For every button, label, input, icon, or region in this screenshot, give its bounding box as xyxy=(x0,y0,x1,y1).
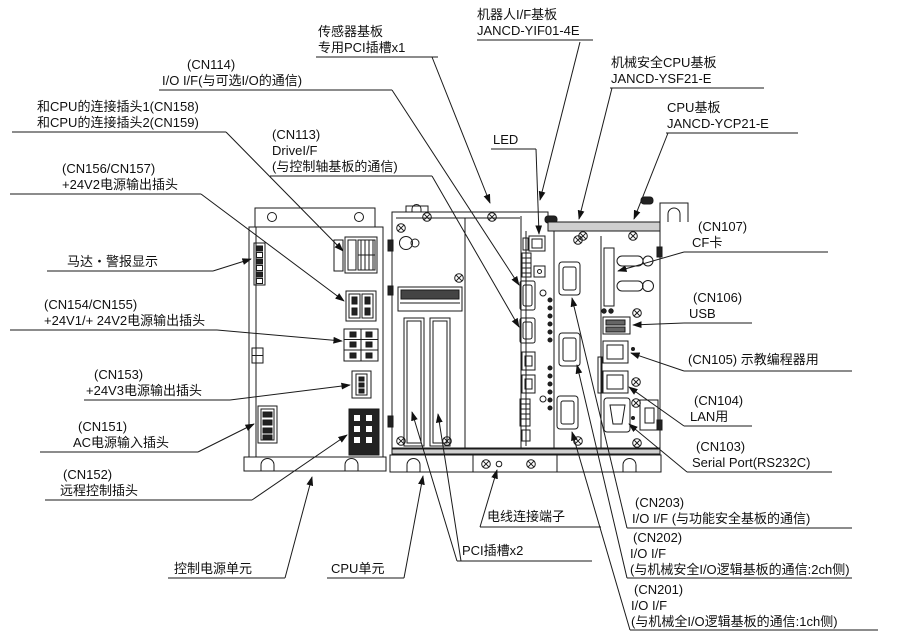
leader-robot-if xyxy=(540,42,580,200)
leader-cn151 xyxy=(198,424,254,452)
leader-control-power xyxy=(285,477,312,578)
controller-diagram-page: 传感器基板 专用PCI插槽x1 机器人I/F基板 JANCD-YIF01-4E … xyxy=(0,0,918,643)
label-sensor-board: 传感器基板 专用PCI插槽x1 xyxy=(318,24,405,56)
label-cn113: (CN113) DriveI/F (与控制轴基板的通信) xyxy=(272,127,398,175)
leader-cn154-155 xyxy=(217,330,342,341)
wire-terminal-point xyxy=(496,461,502,467)
label-cn105: (CN105) 示教编程器用 xyxy=(688,352,819,368)
label-cn153: (CN153) +24V3电源输出插头 xyxy=(86,367,202,399)
label-cn114: (CN114) I/O I/F(与可选I/O的通信) xyxy=(162,57,302,89)
label-cn152: (CN152) 远程控制插头 xyxy=(60,467,138,499)
label-cn203: (CN203) I/O I/F (与功能安全基板的通信) xyxy=(632,495,810,527)
cn152-connector xyxy=(349,409,379,455)
label-pci-slots: PCI插槽x2 xyxy=(462,543,523,559)
leader-cpu-unit xyxy=(404,476,423,578)
cn158-cn159-connector xyxy=(334,237,377,273)
label-safety-cpu-board: 机械安全CPU基板 JANCD-YSF21-E xyxy=(611,55,716,87)
label-cpu-unit: CPU单元 xyxy=(331,561,384,577)
leader-cpu-board xyxy=(634,133,668,219)
leader-cn153 xyxy=(230,385,350,400)
leader-motor-alarm xyxy=(213,259,251,271)
cpu-unit-drawing xyxy=(388,197,688,472)
cf-card-bracket xyxy=(604,248,614,306)
small-connector xyxy=(252,348,263,363)
leader-cn113 xyxy=(432,176,519,327)
label-wire-terminal: 电线连接端子 xyxy=(487,509,565,525)
leader-cn156-157 xyxy=(201,194,344,301)
label-motor-alarm-display: 马达・警报显示 xyxy=(67,254,158,270)
label-cn151: (CN151) AC电源输入插头 xyxy=(73,419,169,451)
cn106-usb-port xyxy=(603,317,630,334)
label-cn158-cn159: 和CPU的连接插头1(CN158) 和CPU的连接插头2(CN159) xyxy=(37,99,199,131)
label-cn202: (CN202) I/O I/F (与机械安全I/O逻辑基板的通信:2ch侧) xyxy=(630,530,850,578)
label-cn104: (CN104) LAN用 xyxy=(690,393,743,425)
safety-cpu-board xyxy=(548,236,582,446)
label-cn156-cn157: (CN156/CN157) +24V2电源输出插头 xyxy=(62,161,178,193)
label-cn107: (CN107) CF卡 xyxy=(692,219,747,251)
led-block xyxy=(529,236,545,251)
leader-cn114 xyxy=(392,90,519,285)
label-cpu-board: CPU基板 JANCD-YCP21-E xyxy=(667,100,769,132)
label-control-power-unit: 控制电源单元 xyxy=(174,561,252,577)
control-power-unit-drawing xyxy=(244,208,386,471)
cn154-cn155-connector xyxy=(344,329,378,361)
leader-cn105 xyxy=(631,353,684,371)
leader-cn201 xyxy=(572,432,630,630)
leader-safety-cpu xyxy=(579,88,612,219)
leader-cn152 xyxy=(252,435,347,500)
leader-sensor-board xyxy=(432,57,490,203)
label-cn154-cn155: (CN154/CN155) +24V1/+ 24V2电源输出插头 xyxy=(44,297,205,329)
leader-led xyxy=(536,149,539,234)
leader-cn107 xyxy=(618,252,684,271)
cn103-serial-port xyxy=(604,398,630,432)
cn105-pendant-port xyxy=(603,341,635,363)
cpu-board-panel xyxy=(598,248,658,447)
label-robot-if-board: 机器人I/F基板 JANCD-YIF01-4E xyxy=(477,7,580,39)
cn151-connector xyxy=(258,406,277,443)
leader-cn106 xyxy=(633,323,684,325)
cn153-connector xyxy=(352,371,371,398)
cn156-cn157-connector xyxy=(346,291,376,321)
label-cn201: (CN201) I/O I/F (与机械全I/O逻辑基板的通信:1ch侧) xyxy=(631,582,838,630)
label-led: LED xyxy=(493,132,518,148)
label-cn103: (CN103) Serial Port(RS232C) xyxy=(692,439,811,471)
label-cn106: (CN106) USB xyxy=(689,290,742,322)
robot-if-board xyxy=(520,236,546,441)
pci-slot-panel xyxy=(397,213,497,446)
cn104-lan-port xyxy=(603,371,628,393)
